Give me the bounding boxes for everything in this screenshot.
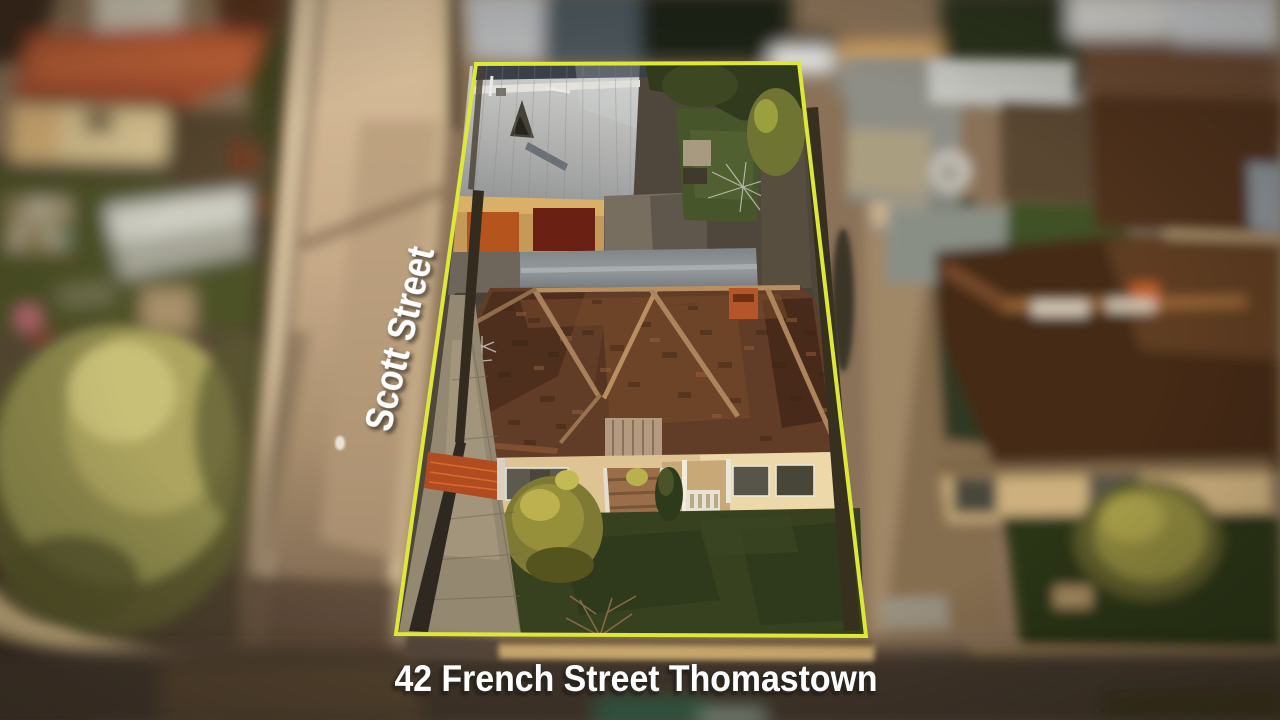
svg-text:42 French Street Thomastown: 42 French Street Thomastown	[395, 658, 878, 699]
